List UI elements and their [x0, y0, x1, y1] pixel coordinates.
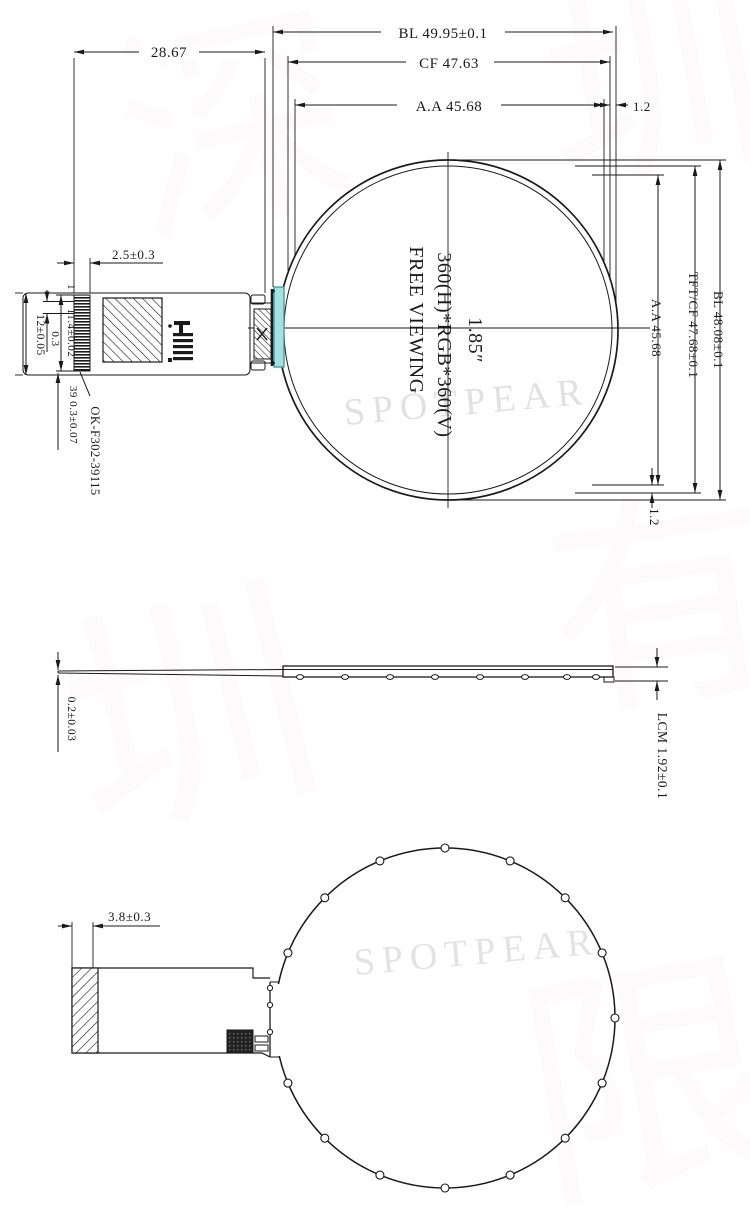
fpc-components — [168, 321, 193, 362]
watermark-cn-icon: 深 — [97, 0, 375, 279]
dim-fpc-thickness: 0.2±0.03 — [65, 697, 77, 742]
watermark-brand-top: SPOTPEAR — [342, 371, 591, 434]
watermark-cn-icon: 圳 — [36, 554, 346, 883]
dim-pin-offset: 0.3 — [49, 331, 61, 346]
dim-edge-top-right: 1.2 — [633, 99, 651, 114]
watermark-cn-icon: 有 — [531, 465, 750, 750]
dim-stiffener-width: 3.8±0.3 — [108, 909, 151, 924]
dim-pin-count-pitch: 39 0.3±0.07 — [67, 386, 79, 444]
screen-viewing-label: FREE VIEWING — [405, 246, 427, 393]
dim-aa-width: A.A 45.68 — [416, 99, 483, 115]
pin-one-label: 1 — [65, 284, 77, 290]
fpc-tab-bottom — [251, 361, 265, 370]
screen-size-label: 1.85″ — [464, 317, 486, 363]
dim-finger-height: 11.4±0.02 — [65, 309, 77, 358]
back-connector-tab — [255, 1036, 268, 1042]
back-stiffener — [72, 968, 98, 1053]
dim-finger-length: 2.5±0.3 — [112, 247, 155, 262]
dim-lcm-thickness: LCM 1.92±0.1 — [655, 713, 670, 800]
screen-resolution-label: 360(H)*RGB*360(V) — [433, 252, 455, 437]
dim-aa-height: A.A 45.68 — [649, 299, 664, 357]
connector-part-no: OK-F302-39115 — [88, 406, 102, 495]
strip-corner-mark — [271, 289, 275, 293]
dim-tftcf-height: TFT/CF 47.68±0.1 — [686, 272, 701, 379]
fpc-bond-strip — [274, 287, 284, 367]
dim-bl-width: BL 49.95±0.1 — [398, 26, 487, 42]
back-dimension-lines — [58, 922, 160, 968]
dim-edge-bottom-right: 1.2 — [647, 508, 662, 526]
technical-drawing: 深 圳 圳 有 限 SPOTPEAR SPOTPEAR — [0, 0, 750, 1222]
watermark-layer: 深 圳 圳 有 限 SPOTPEAR SPOTPEAR — [36, 0, 750, 1222]
dim-bl-height: BL 48.08±0.1 — [711, 291, 726, 369]
stiffener-area — [103, 298, 162, 362]
leader-line — [80, 372, 90, 396]
dim-fpc-to-edge: 28.67 — [151, 45, 187, 61]
watermark-cn-icon: 限 — [501, 928, 750, 1222]
drawing-canvas: 深 圳 圳 有 限 SPOTPEAR SPOTPEAR — [0, 0, 750, 1222]
dim-cf-width: CF 47.63 — [419, 56, 479, 72]
dim-fpc-width: 12±0.05 — [34, 314, 46, 355]
strip-corner-mark — [271, 361, 275, 365]
back-connector-block — [227, 1030, 253, 1053]
back-connector-tab — [255, 1045, 268, 1051]
